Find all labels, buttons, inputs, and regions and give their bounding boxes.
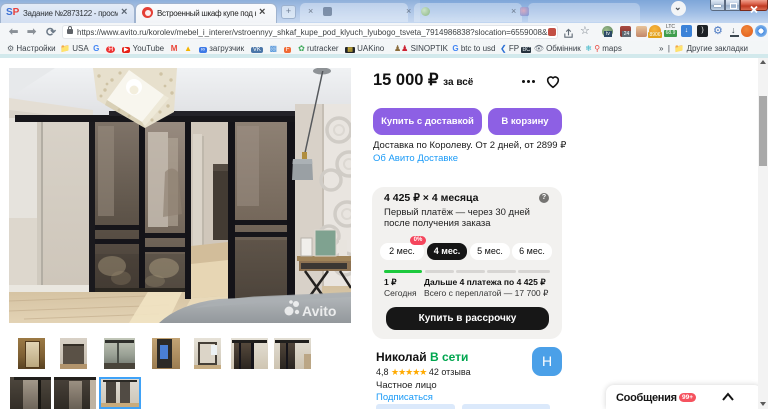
svg-text:Avito: Avito (302, 303, 336, 319)
